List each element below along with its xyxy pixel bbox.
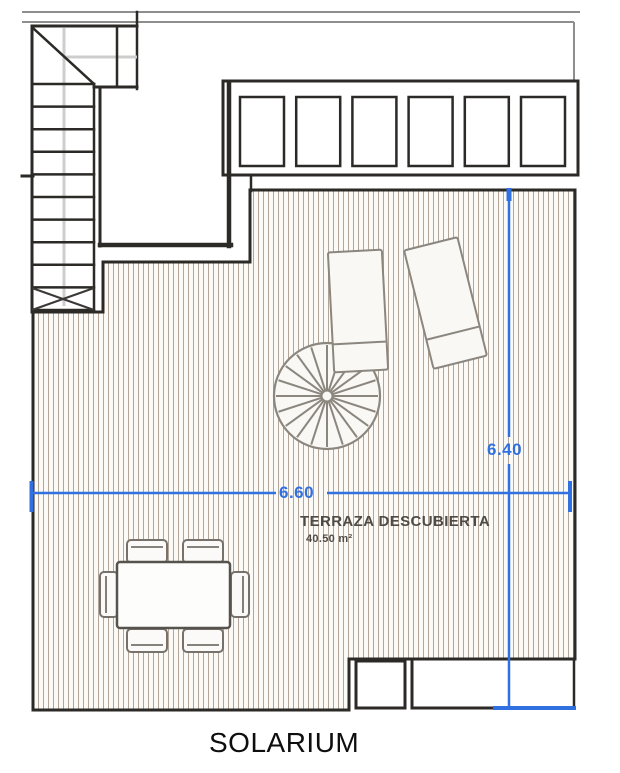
chimney-box bbox=[356, 661, 405, 708]
dining-chair bbox=[127, 629, 167, 652]
area-size-label: 40.50 m² bbox=[306, 533, 352, 545]
pergola-panel bbox=[296, 97, 340, 166]
bottom-right-structures bbox=[356, 659, 574, 708]
dimension-height-label: 6.40 bbox=[487, 440, 522, 460]
dining-chair bbox=[183, 540, 223, 563]
pergola-panel bbox=[409, 97, 453, 166]
dining-table bbox=[117, 562, 230, 628]
pergola-band bbox=[100, 81, 578, 246]
dining-chair bbox=[127, 540, 167, 563]
sun-lounger-left bbox=[328, 250, 388, 373]
pergola-panel bbox=[465, 97, 509, 166]
dining-chair bbox=[231, 572, 249, 617]
sun-lounger-right bbox=[404, 237, 487, 369]
pergola-panel bbox=[352, 97, 396, 166]
dining-chair bbox=[183, 629, 223, 652]
dining-set bbox=[100, 540, 249, 652]
area-name-label: TERRAZA DESCUBIERTA bbox=[300, 513, 490, 530]
top-boundary-lines bbox=[22, 12, 580, 89]
dining-chair bbox=[100, 572, 118, 617]
staircase bbox=[22, 26, 137, 312]
page-title: SOLARIUM bbox=[209, 727, 359, 759]
floor-plan: 6.60 6.40 TERRAZA DESCUBIERTA 40.50 m² S… bbox=[0, 0, 620, 773]
pergola-panel bbox=[521, 97, 565, 166]
pergola-panels bbox=[240, 97, 565, 166]
pergola-panel bbox=[240, 97, 284, 166]
plan-linework bbox=[0, 0, 620, 773]
dimension-width-label: 6.60 bbox=[279, 483, 314, 503]
